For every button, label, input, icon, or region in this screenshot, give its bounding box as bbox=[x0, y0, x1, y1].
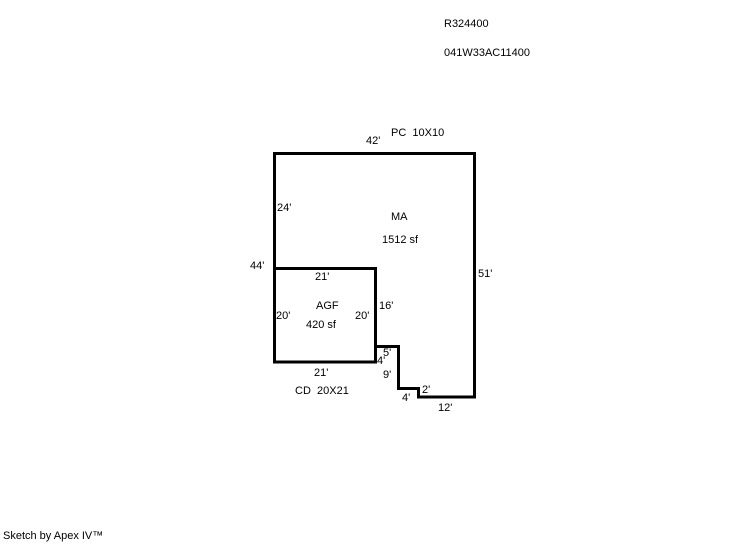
dim-agf-bottom-21: 21' bbox=[314, 368, 328, 379]
dim-16: 16' bbox=[379, 301, 393, 312]
footer-credit: Sketch by Apex IV™ bbox=[3, 531, 103, 542]
dim-left-44: 44' bbox=[250, 261, 264, 272]
dim-4-upper: 4' bbox=[377, 356, 385, 367]
dim-12: 12' bbox=[438, 403, 452, 414]
label-ma: MA bbox=[391, 212, 408, 223]
dim-agf-right-20: 20' bbox=[355, 311, 369, 322]
dim-9: 9' bbox=[383, 370, 391, 381]
floorplan-sketch bbox=[0, 0, 746, 547]
label-agf: AGF bbox=[316, 301, 339, 312]
dim-agf-top-21: 21' bbox=[315, 272, 329, 283]
dim-agf-left-20: 20' bbox=[276, 311, 290, 322]
dim-4-lower: 4' bbox=[402, 393, 410, 404]
sketch-canvas: R324400 041W33AC11400 PC 10X1042'24'MA15… bbox=[0, 0, 746, 547]
dim-left-24: 24' bbox=[277, 203, 291, 214]
label-ma-area: 1512 sf bbox=[382, 235, 418, 246]
dim-top-42: 42' bbox=[366, 136, 380, 147]
dim-right-51: 51' bbox=[478, 269, 492, 280]
label-pc: PC 10X10 bbox=[391, 128, 444, 139]
label-agf-area: 420 sf bbox=[306, 320, 336, 331]
label-cd: CD 20X21 bbox=[295, 386, 349, 397]
dim-2: 2' bbox=[422, 385, 430, 396]
